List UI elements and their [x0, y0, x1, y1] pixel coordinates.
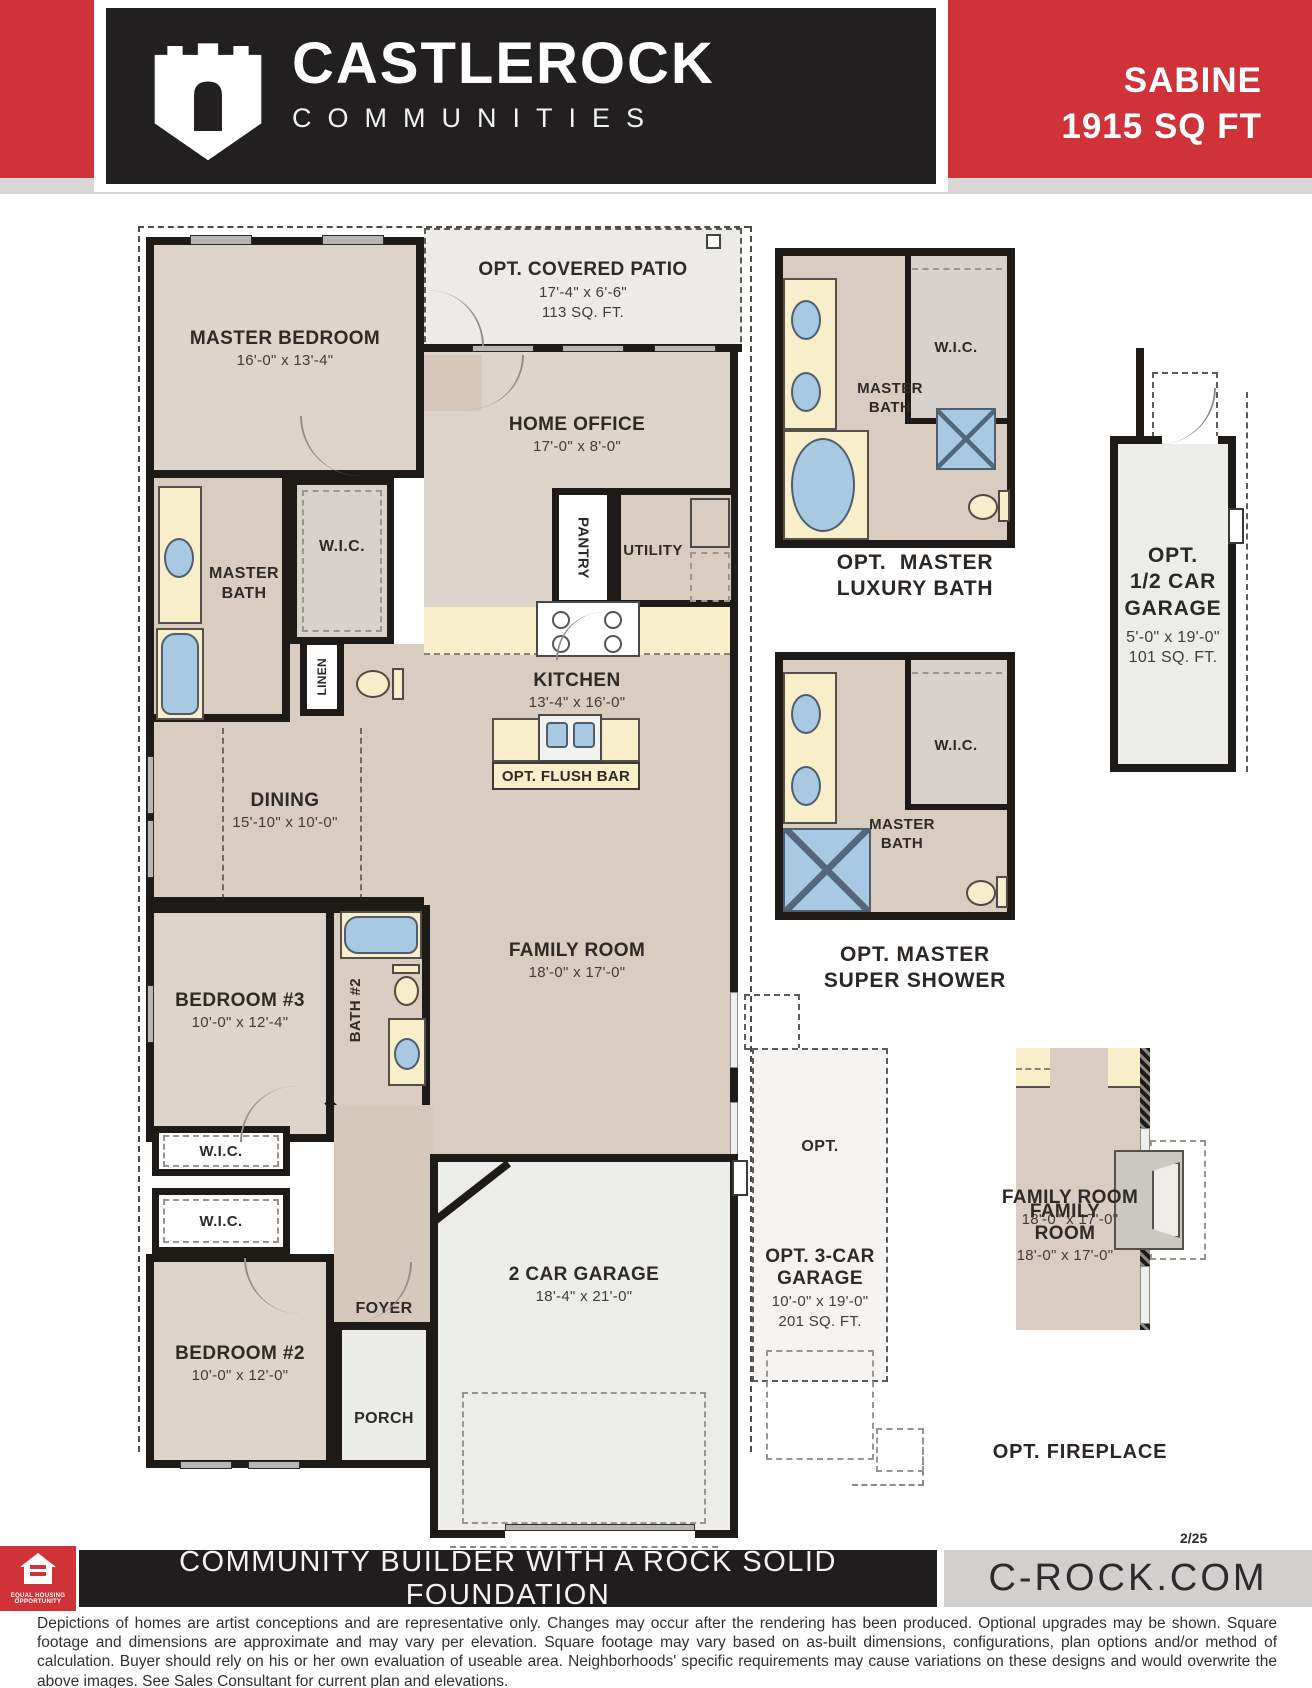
room-dims: 17'-4" x 6'-6" [539, 284, 627, 302]
room-dims: 13'-4" x 16'-0" [529, 694, 626, 712]
brand-text: CASTLEROCK COMMUNITIES [292, 34, 912, 134]
room-label: BATH #2 [347, 978, 364, 1042]
utility-label: UTILITY [618, 542, 688, 560]
room-dims: 15'-10" x 10'-0" [232, 814, 337, 832]
room-label: W.I.C. [934, 339, 977, 356]
window [562, 345, 624, 352]
inset-wic-label: W.I.C. [905, 334, 1007, 360]
inset-wic-label: W.I.C. [905, 732, 1007, 758]
garage-door-opening [505, 1530, 695, 1538]
hall-fill [334, 1105, 434, 1254]
website-bar[interactable]: C-ROCK.COM [944, 1550, 1312, 1607]
room-label: MASTER BATH [202, 564, 286, 604]
room-label: MASTER BATH [848, 379, 932, 418]
room-label: PORCH [354, 1410, 414, 1428]
option-label: OPT. 3-CAR [765, 1246, 875, 1268]
option-area: 101 SQ. FT. [1129, 649, 1218, 667]
fireplace-caption: OPT. FIREPLACE [980, 1438, 1180, 1466]
caption-line: SUPER SHOWER [824, 968, 1006, 994]
plan-size: 1915 SQ FT [952, 104, 1262, 150]
window [472, 345, 534, 352]
property-line [1246, 392, 1248, 772]
sink-icon [164, 538, 194, 578]
room-dims: 10'-0" x 12'-0" [192, 1367, 289, 1385]
flush-bar-label: OPT. FLUSH BAR [492, 762, 640, 790]
wall [1136, 348, 1144, 440]
option-label: OPT. [801, 1138, 838, 1156]
context-dash [876, 1428, 924, 1472]
room-label: W.I.C. [199, 1213, 242, 1230]
sink-icon [791, 300, 821, 340]
counter-dash [1016, 1068, 1050, 1070]
eho-badge: EQUAL HOUSING OPPORTUNITY [0, 1546, 76, 1611]
kitchen-label: KITCHEN 13'-4" x 16'-0" [424, 662, 730, 720]
equal-housing-icon [18, 1552, 58, 1591]
master-bath-label: MASTER BATH [202, 556, 286, 612]
window [730, 992, 738, 1068]
website-url[interactable]: C-ROCK.COM [988, 1557, 1267, 1600]
washer-icon [690, 498, 730, 548]
master-bedroom-label: MASTER BEDROOM 16'-0" x 13'-4" [146, 318, 424, 380]
room-label: UTILITY [623, 542, 682, 559]
room-label: ROOM [1035, 1223, 1096, 1245]
tagline-bar: COMMUNITY BUILDER WITH A ROCK SOLID FOUN… [79, 1550, 937, 1607]
option-area: 201 SQ. FT. [778, 1313, 861, 1330]
counter [1108, 1048, 1140, 1088]
inset-bath-label: MASTER BATH [860, 808, 944, 860]
sink-basin [546, 722, 568, 748]
luxury-bath-caption: OPT. MASTER LUXURY BATH [790, 548, 1040, 604]
rev-date: 2/25 [1180, 1530, 1240, 1546]
garage-side-door [1228, 508, 1244, 544]
island-sink [538, 714, 602, 762]
room-dims: 18'-4" x 21'-0" [536, 1288, 633, 1306]
sink-icon [791, 372, 821, 412]
garage-slab [462, 1392, 706, 1524]
room-label: LINEN [315, 658, 329, 696]
three-car-label: OPT. 3-CAR GARAGE 10'-0" x 19'-0" 201 SQ… [752, 1240, 888, 1336]
room-label: W.I.C. [319, 538, 365, 556]
eho-text: OPPORTUNITY [15, 1599, 62, 1605]
brand-name: CASTLEROCK [292, 34, 912, 95]
half-garage-label: OPT. 1/2 CAR GARAGE 5'-0" x 19'-0" 101 S… [1110, 540, 1236, 670]
room-label: FAMILY [1030, 1201, 1100, 1223]
wic2-label: W.I.C. [152, 1208, 290, 1234]
bathtub-icon [161, 633, 199, 715]
caption-line: OPT. MASTER [840, 942, 990, 968]
room-dims: 17'-0" x 8'-0" [533, 438, 621, 456]
inset-bath-label: MASTER BATH [848, 372, 932, 424]
toilet-icon [392, 964, 420, 974]
firebox [1152, 1162, 1180, 1238]
room-dims: 18'-0" x 17'-0" [529, 964, 626, 982]
sink-icon [394, 1038, 420, 1070]
garage-label: 2 CAR GARAGE 18'-4" x 21'-0" [430, 1252, 738, 1318]
room-dims: 18'-0" x 17'-0" [1017, 1247, 1114, 1265]
toilet-icon [996, 876, 1008, 908]
three-car-door-context [744, 994, 800, 1050]
option-dims: 5'-0" x 19'-0" [1126, 628, 1220, 647]
castle-icon [142, 32, 274, 164]
window [180, 1461, 232, 1469]
shower-icon [783, 828, 871, 912]
plan-name: SABINE [952, 58, 1262, 104]
fireplace-room-label-b: FAMILY ROOM 18'-0" x 17'-0" [1000, 1190, 1130, 1276]
sink-icon [791, 766, 821, 806]
option-label: 1/2 CAR [1130, 569, 1216, 595]
room-dims: 10'-0" x 12'-4" [192, 1014, 289, 1032]
room-label: W.I.C. [934, 737, 977, 754]
master-wic-label: W.I.C. [290, 532, 394, 562]
window [248, 1461, 300, 1469]
disclaimer-text: Depictions of homes are artist conceptio… [37, 1614, 1277, 1688]
family-label: FAMILY ROOM 18'-0" x 17'-0" [424, 928, 730, 994]
caption-line: OPT. FIREPLACE [993, 1440, 1168, 1465]
toilet-icon [356, 670, 390, 698]
window [1140, 1266, 1150, 1324]
window [190, 235, 252, 245]
garage-door [505, 1524, 695, 1531]
room-label: MASTER BEDROOM [190, 328, 380, 350]
room-area: 113 SQ. FT. [542, 304, 624, 321]
caption-line: LUXURY BATH [837, 576, 994, 602]
bathtub-icon [344, 916, 418, 954]
option-dims: 10'-0" x 19'-0" [772, 1293, 869, 1311]
bath2-label: BATH #2 [344, 958, 366, 1062]
garage-side-door [732, 1160, 748, 1196]
brand-subtitle: COMMUNITIES [292, 103, 912, 134]
room-label: OPT. COVERED PATIO [478, 259, 687, 281]
room-label: DINING [251, 790, 320, 812]
option-label: GARAGE [777, 1268, 863, 1290]
super-shower-caption: OPT. MASTER SUPER SHOWER [790, 940, 1040, 996]
brochure-page: CASTLEROCK COMMUNITIES SABINE 1915 SQ FT… [0, 0, 1312, 1688]
room-family [424, 862, 730, 1154]
bedroom2-label: BEDROOM #2 10'-0" x 12'-0" [146, 1333, 334, 1395]
room-linen: LINEN [300, 638, 344, 716]
toilet-icon [998, 490, 1010, 522]
room-dims: 16'-0" x 13'-4" [237, 352, 334, 370]
room-label: BEDROOM #2 [175, 1343, 305, 1365]
window [322, 235, 384, 245]
room-label: 2 CAR GARAGE [509, 1264, 659, 1286]
dining-label: DINING 15'-10" x 10'-0" [146, 780, 424, 842]
room-pantry: PANTRY [552, 488, 614, 607]
room-label: BEDROOM #3 [175, 990, 305, 1012]
property-line-left [138, 226, 140, 1452]
toilet-icon [966, 880, 996, 906]
home-office-label: HOME OFFICE 17'-0" x 8'-0" [424, 405, 730, 465]
wall [146, 897, 432, 905]
wall [334, 1322, 434, 1330]
toilet-icon [394, 976, 419, 1006]
closet-shelving [912, 268, 1002, 270]
bedroom3-label: BEDROOM #3 10'-0" x 12'-4" [146, 980, 334, 1042]
patio-post [706, 234, 721, 249]
caption-line: OPT. MASTER [837, 550, 994, 576]
window [654, 345, 716, 352]
toilet-icon [392, 668, 404, 700]
sink-icon [791, 694, 821, 734]
room-label: FAMILY ROOM [509, 940, 645, 962]
closet-shelving [912, 672, 1002, 674]
sink-basin [573, 722, 595, 748]
toilet-icon [968, 494, 998, 520]
dryer-icon [690, 552, 730, 602]
room-label: PANTRY [575, 517, 592, 579]
option-label: OPT. [1148, 543, 1198, 569]
logo-box: CASTLEROCK COMMUNITIES [106, 8, 936, 184]
three-car-opt-tag: OPT. [752, 1136, 888, 1158]
room-label: MASTER BATH [860, 815, 944, 854]
room-label: W.I.C. [199, 1143, 242, 1160]
room-porch [334, 1330, 434, 1468]
room-label: OPT. FLUSH BAR [502, 768, 630, 785]
tagline-text: COMMUNITY BUILDER WITH A ROCK SOLID FOUN… [79, 1546, 937, 1612]
porch-label: PORCH [334, 1406, 434, 1432]
option-label: GARAGE [1125, 596, 1222, 622]
plan-title-block: SABINE 1915 SQ FT [952, 58, 1262, 149]
room-label: HOME OFFICE [509, 414, 645, 436]
shower-icon [936, 408, 996, 470]
room-label: KITCHEN [533, 670, 620, 692]
bathtub-icon [791, 438, 855, 532]
